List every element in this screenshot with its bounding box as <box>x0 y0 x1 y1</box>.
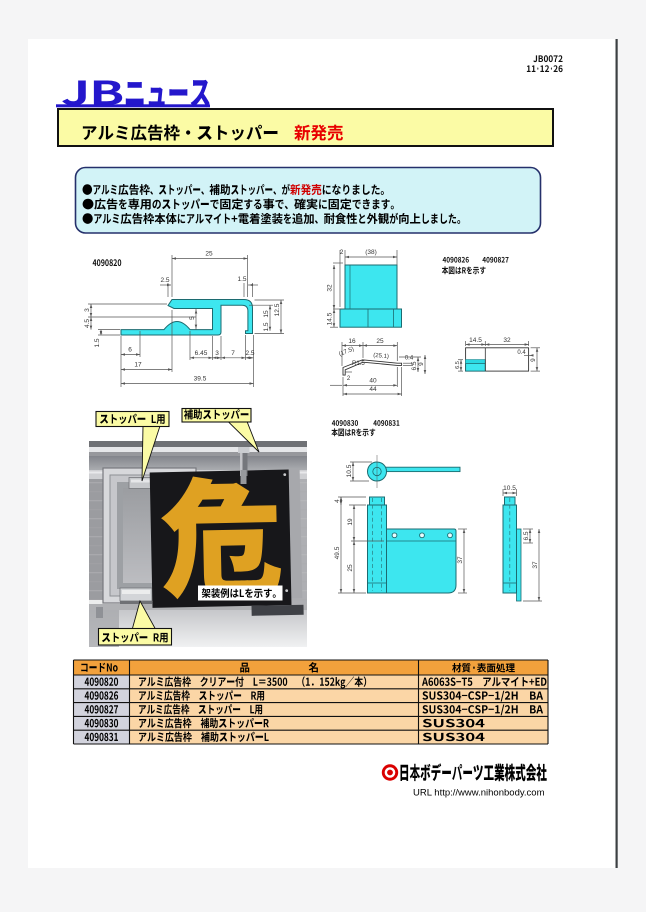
svg-text:40: 40 <box>369 378 377 385</box>
svg-text:32: 32 <box>327 284 334 292</box>
svg-text:14.5: 14.5 <box>469 337 482 344</box>
svg-text:0.4: 0.4 <box>405 356 414 362</box>
svg-text:12.5: 12.5 <box>274 303 281 316</box>
svg-text:1.5: 1.5 <box>237 276 246 283</box>
svg-text:49.5: 49.5 <box>334 546 341 559</box>
svg-text:6.5: 6.5 <box>411 361 418 370</box>
svg-text:1.5: 1.5 <box>94 338 101 347</box>
svg-text:4.5: 4.5 <box>84 319 91 328</box>
svg-text:R1.5: R1.5 <box>352 361 365 367</box>
svg-text:19: 19 <box>347 518 354 526</box>
svg-text:2.5: 2.5 <box>160 277 169 284</box>
svg-text:URL http://www.nihonbody.com: URL http://www.nihonbody.com <box>413 788 545 799</box>
svg-text:10.5: 10.5 <box>503 485 516 492</box>
svg-text:6.45: 6.45 <box>195 350 208 357</box>
svg-text:3: 3 <box>84 308 91 312</box>
svg-text:6.5: 6.5 <box>455 361 461 369</box>
svg-text:2.5: 2.5 <box>245 350 254 357</box>
svg-text:39.5: 39.5 <box>194 376 207 383</box>
svg-text:17: 17 <box>134 362 142 369</box>
svg-text:6.5: 6.5 <box>523 531 530 540</box>
svg-text:25: 25 <box>347 564 354 572</box>
svg-text:14.5: 14.5 <box>327 312 334 325</box>
svg-text:6: 6 <box>128 347 132 354</box>
svg-text:25: 25 <box>376 338 384 345</box>
svg-text:(38): (38) <box>365 249 377 256</box>
svg-text:25: 25 <box>205 251 213 258</box>
svg-text:2: 2 <box>340 249 344 256</box>
svg-text:15: 15 <box>263 310 270 318</box>
svg-text:3: 3 <box>215 350 219 357</box>
svg-text:44: 44 <box>369 386 377 393</box>
svg-text:9: 9 <box>530 358 537 362</box>
svg-text:5: 5 <box>189 316 196 320</box>
svg-text:9: 9 <box>418 362 425 366</box>
svg-text:10.5: 10.5 <box>346 464 353 477</box>
svg-text:37: 37 <box>457 556 464 564</box>
svg-text:7: 7 <box>231 350 235 357</box>
svg-text:32: 32 <box>503 337 511 344</box>
svg-text:1.5: 1.5 <box>263 322 270 331</box>
svg-text:16: 16 <box>348 338 356 345</box>
svg-text:37: 37 <box>532 561 539 569</box>
